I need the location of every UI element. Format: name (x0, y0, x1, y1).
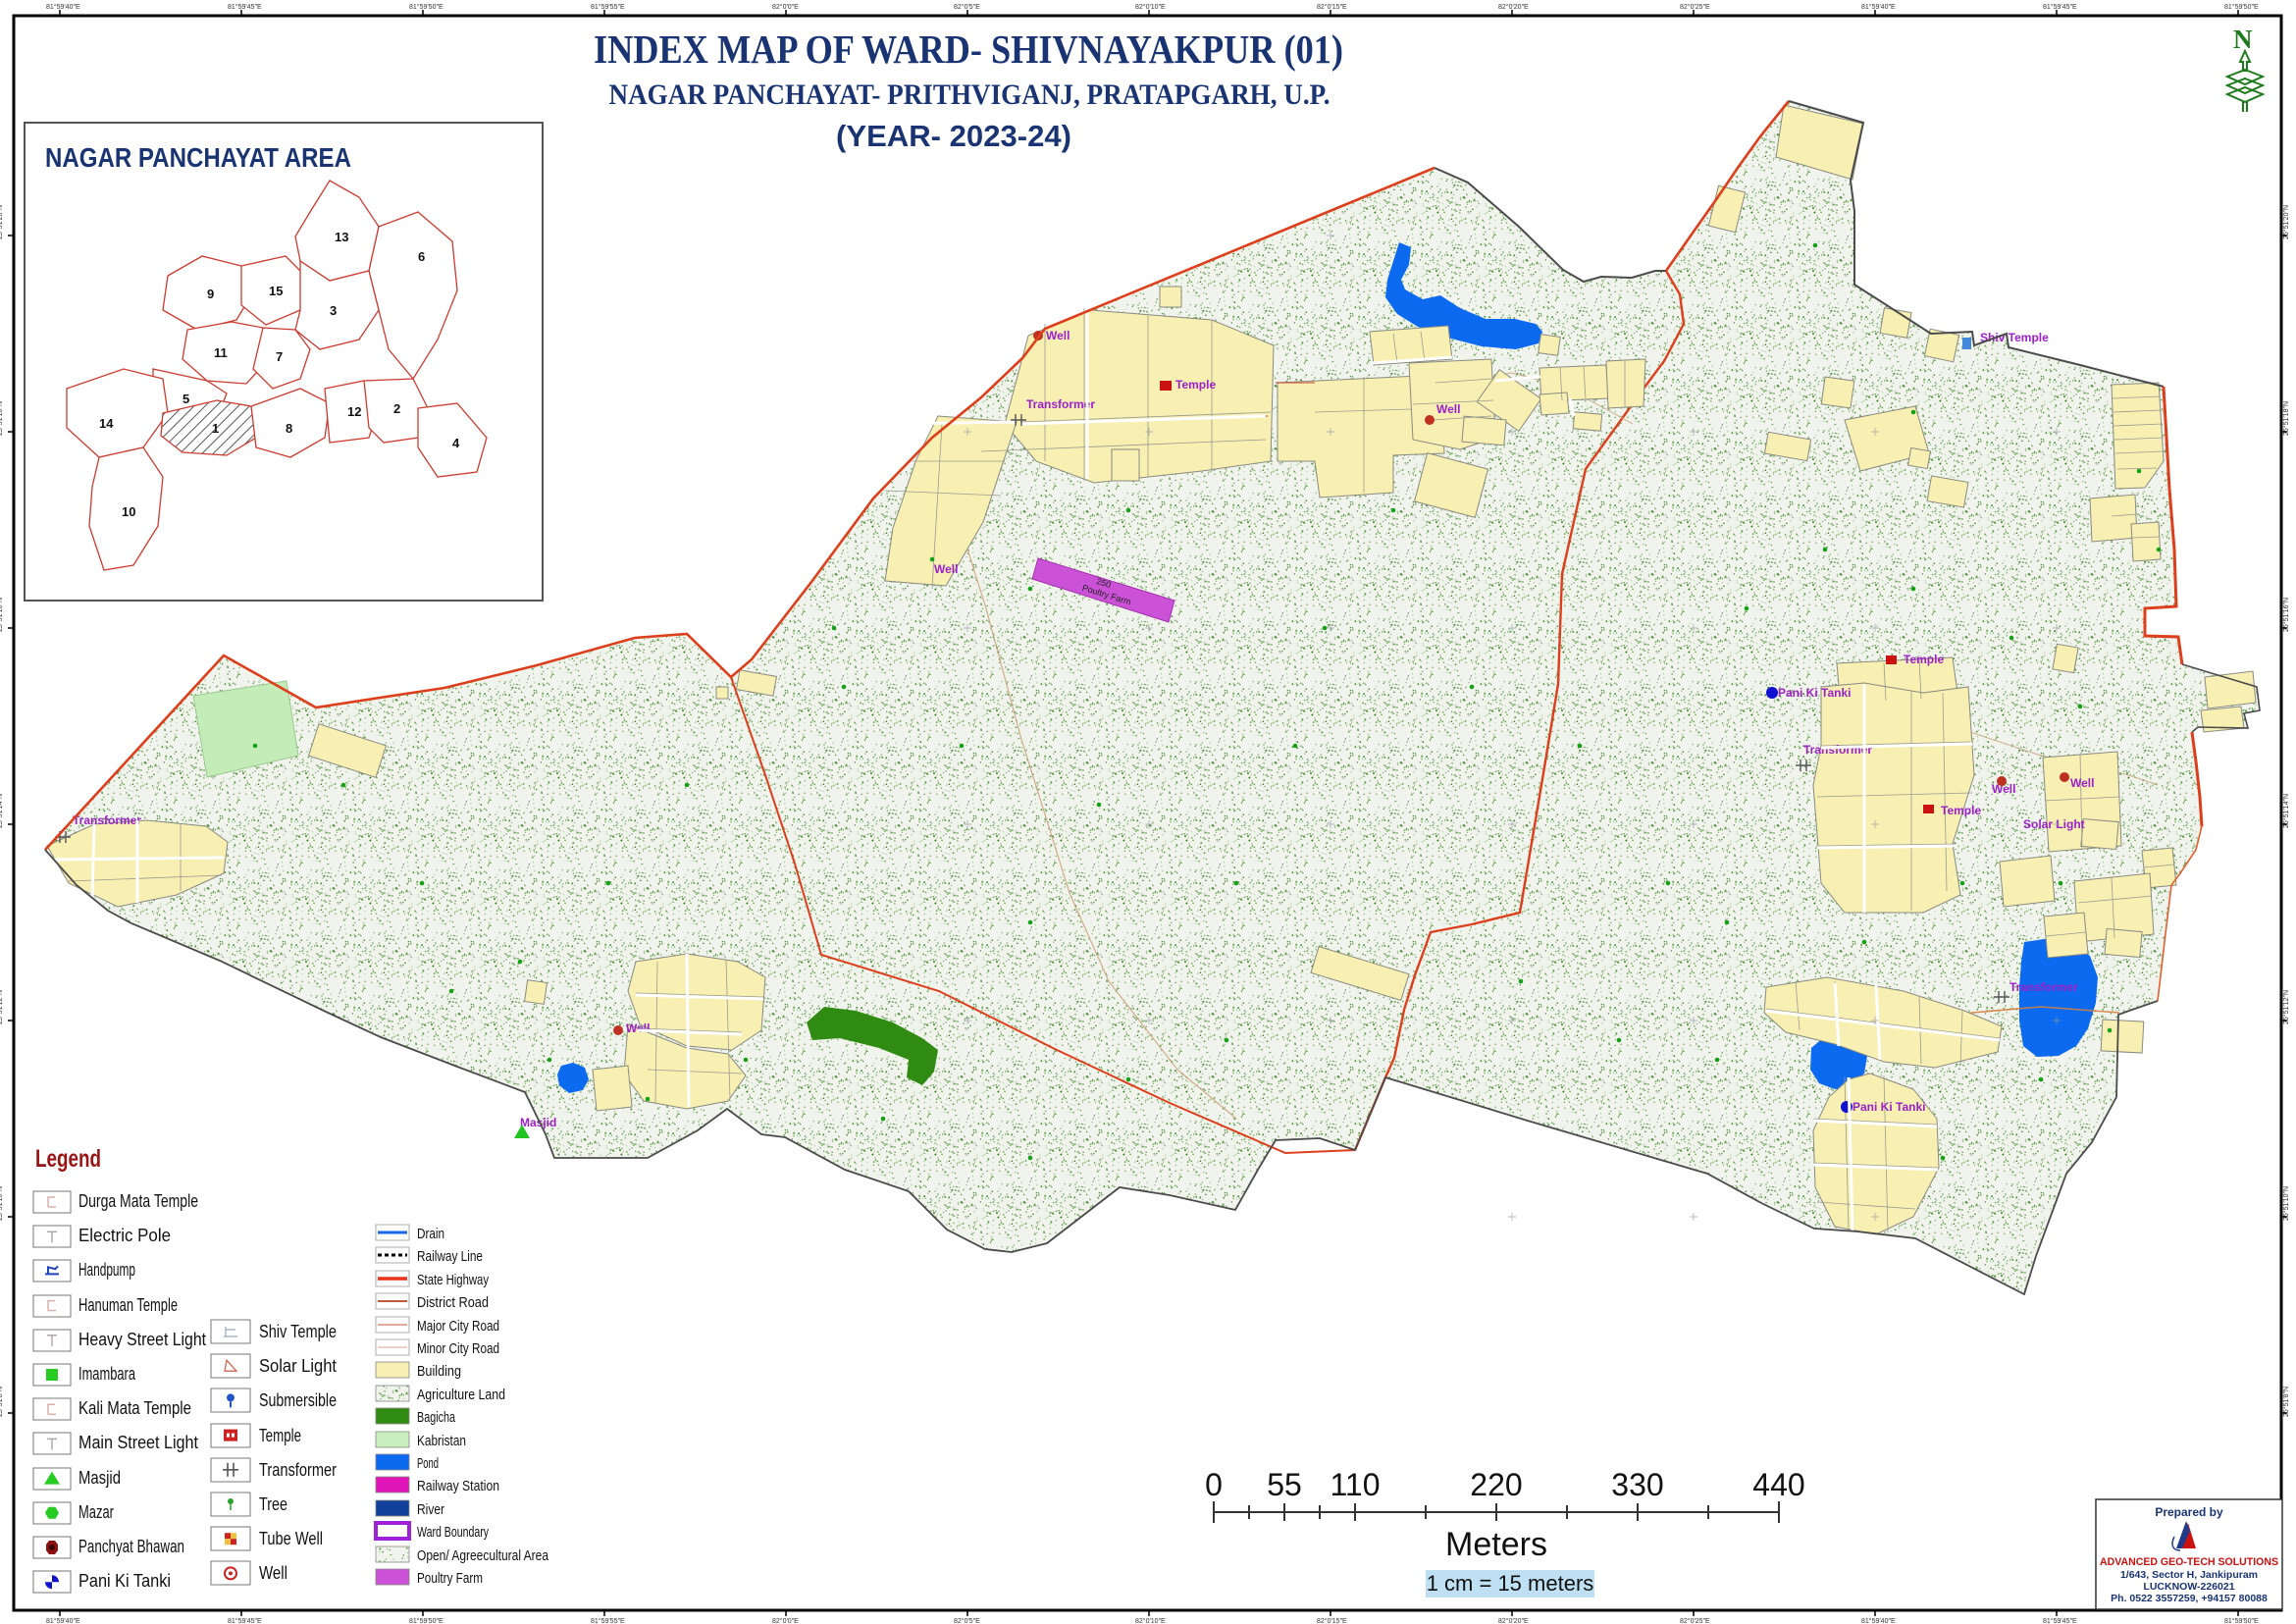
svg-text:25°51′18″N: 25°51′18″N (2282, 401, 2290, 436)
svg-text:Minor City Road: Minor City Road (417, 1341, 499, 1357)
svg-text:Meters: Meters (1445, 1526, 1547, 1563)
svg-text:25°51′14″N: 25°51′14″N (2282, 794, 2290, 828)
svg-text:Temple: Temple (1904, 653, 1944, 666)
svg-text:25°51′20″N: 25°51′20″N (0, 205, 4, 239)
svg-text:Open/ Agreecultural Area: Open/ Agreecultural Area (417, 1548, 549, 1564)
svg-text:N: N (2233, 25, 2253, 54)
svg-text:82°0′5″E: 82°0′5″E (954, 3, 980, 11)
svg-text:Drain: Drain (417, 1227, 444, 1242)
svg-text:6: 6 (418, 249, 425, 264)
svg-text:110: 110 (1330, 1467, 1380, 1502)
svg-text:Building: Building (417, 1364, 461, 1380)
svg-text:81°59′45″E: 81°59′45″E (228, 1617, 262, 1624)
svg-text:Prepared by: Prepared by (2155, 1505, 2223, 1519)
svg-text:81°59′40″E: 81°59′40″E (46, 1617, 80, 1624)
svg-text:River: River (417, 1502, 444, 1518)
svg-text:81°59′45″E: 81°59′45″E (2043, 3, 2077, 11)
svg-text:Legend: Legend (35, 1145, 101, 1173)
svg-text:82°0′0″E: 82°0′0″E (772, 3, 799, 11)
svg-text:Ward Boundary: Ward Boundary (417, 1525, 490, 1541)
svg-text:Masjid: Masjid (78, 1468, 121, 1488)
svg-text:8: 8 (286, 421, 292, 436)
svg-text:Pani Ki Tanki: Pani Ki Tanki (1852, 1100, 1925, 1114)
svg-text:82°0′15″E: 82°0′15″E (1317, 3, 1347, 11)
svg-text:Well: Well (259, 1563, 287, 1583)
svg-text:14: 14 (99, 416, 114, 431)
svg-text:Hanuman Temple: Hanuman Temple (78, 1295, 178, 1315)
svg-text:Transformer: Transformer (1026, 397, 1095, 411)
svg-text:Transformer: Transformer (259, 1460, 337, 1480)
svg-text:81°59′50″E: 81°59′50″E (409, 3, 444, 11)
svg-text:0: 0 (1205, 1467, 1223, 1502)
svg-text:Poultry Farm: Poultry Farm (417, 1571, 483, 1587)
svg-text:81°59′45″E: 81°59′45″E (228, 3, 262, 11)
svg-text:220: 220 (1470, 1467, 1522, 1502)
svg-text:13: 13 (335, 230, 348, 244)
svg-text:Kabristan: Kabristan (417, 1434, 466, 1449)
svg-text:Pani Ki Tanki: Pani Ki Tanki (78, 1571, 171, 1591)
svg-text:(YEAR- 2023-24): (YEAR- 2023-24) (836, 119, 1071, 153)
svg-text:LUCKNOW-226021: LUCKNOW-226021 (2143, 1581, 2234, 1593)
svg-text:81°59′50″E: 81°59′50″E (2224, 1617, 2259, 1624)
svg-text:Railway Station: Railway Station (417, 1479, 499, 1494)
svg-text:Transformer: Transformer (2009, 980, 2078, 994)
svg-text:Well: Well (1046, 329, 1070, 342)
svg-text:81°59′40″E: 81°59′40″E (1861, 1617, 1896, 1624)
svg-text:15: 15 (269, 284, 283, 298)
svg-text:Transformer: Transformer (73, 813, 141, 827)
svg-text:Pani Ki Tanki: Pani Ki Tanki (1778, 686, 1851, 700)
svg-text:Railway Line: Railway Line (417, 1249, 483, 1265)
svg-text:ADVANCED GEO-TECH SOLUTIONS: ADVANCED GEO-TECH SOLUTIONS (2100, 1556, 2278, 1568)
svg-text:Temple: Temple (1175, 378, 1216, 392)
svg-text:State Highway: State Highway (417, 1273, 490, 1288)
svg-text:Well: Well (1436, 402, 1460, 416)
svg-text:25°51′8″N: 25°51′8″N (2282, 1387, 2290, 1417)
svg-text:1 cm = 15 meters: 1 cm = 15 meters (1427, 1571, 1594, 1596)
svg-text:5: 5 (183, 392, 189, 406)
svg-text:Pond: Pond (417, 1456, 439, 1472)
svg-text:1/643, Sector H, Jankipuram: 1/643, Sector H, Jankipuram (2120, 1569, 2258, 1581)
svg-text:Durga Mata Temple: Durga Mata Temple (78, 1191, 198, 1211)
svg-text:Well: Well (934, 562, 958, 576)
svg-text:INDEX MAP OF WARD- SHIVNAYAKPU: INDEX MAP OF WARD- SHIVNAYAKPUR (01) (594, 26, 1343, 72)
svg-text:Shiv Temple: Shiv Temple (1980, 331, 2049, 344)
svg-text:1: 1 (212, 421, 219, 436)
svg-text:11: 11 (214, 345, 228, 360)
svg-text:Main Street Light: Main Street Light (78, 1433, 198, 1452)
svg-text:81°59′40″E: 81°59′40″E (46, 3, 80, 11)
svg-text:Tree: Tree (259, 1494, 287, 1514)
svg-text:25°51′12″N: 25°51′12″N (2282, 990, 2290, 1024)
svg-text:Agriculture Land: Agriculture Land (417, 1388, 505, 1403)
svg-text:Electric Pole: Electric Pole (78, 1226, 171, 1245)
svg-text:Temple: Temple (259, 1426, 301, 1445)
svg-text:Well: Well (626, 1022, 650, 1035)
svg-text:3: 3 (330, 303, 337, 318)
svg-text:25°51′20″N: 25°51′20″N (2282, 205, 2290, 239)
svg-text:82°0′10″E: 82°0′10″E (1135, 3, 1166, 11)
svg-text:81°59′40″E: 81°59′40″E (1861, 3, 1896, 11)
svg-text:Transformer: Transformer (1803, 743, 1872, 757)
svg-text:Submersible: Submersible (259, 1390, 337, 1410)
svg-text:Temple: Temple (1941, 804, 1981, 817)
svg-text:2: 2 (393, 401, 400, 416)
svg-text:Tube Well: Tube Well (259, 1529, 323, 1548)
svg-text:Panchyat Bhawan: Panchyat Bhawan (78, 1537, 184, 1556)
svg-text:Solar Light: Solar Light (259, 1356, 337, 1376)
svg-text:NAGAR PANCHAYAT- PRITHVIGANJ,: NAGAR PANCHAYAT- PRITHVIGANJ, PRATAPGARH… (609, 79, 1331, 111)
svg-text:25°51′10″N: 25°51′10″N (2282, 1186, 2290, 1221)
svg-text:4: 4 (452, 436, 460, 450)
svg-text:330: 330 (1611, 1467, 1663, 1502)
svg-text:82°0′20″E: 82°0′20″E (1498, 3, 1529, 11)
svg-text:Bagicha: Bagicha (417, 1410, 456, 1426)
svg-text:81°59′50″E: 81°59′50″E (409, 1617, 444, 1624)
svg-text:82°0′25″E: 82°0′25″E (1680, 3, 1710, 11)
svg-text:81°59′55″E: 81°59′55″E (591, 1617, 625, 1624)
svg-text:25°51′18″N: 25°51′18″N (0, 401, 4, 436)
svg-text:Well: Well (2070, 776, 2094, 790)
svg-text:12: 12 (347, 404, 361, 419)
svg-text:Heavy Street Light: Heavy Street Light (78, 1330, 206, 1349)
svg-text:82°0′10″E: 82°0′10″E (1135, 1617, 1166, 1624)
svg-text:10: 10 (122, 504, 135, 519)
svg-text:25°51′14″N: 25°51′14″N (0, 794, 4, 828)
svg-text:25°51′10″N: 25°51′10″N (0, 1186, 4, 1221)
svg-text:Kali Mata Temple: Kali Mata Temple (78, 1398, 191, 1418)
svg-text:82°0′15″E: 82°0′15″E (1317, 1617, 1347, 1624)
svg-text:81°59′50″E: 81°59′50″E (2224, 3, 2259, 11)
svg-text:9: 9 (207, 287, 214, 301)
svg-text:25°51′16″N: 25°51′16″N (2282, 598, 2290, 632)
svg-text:440: 440 (1752, 1467, 1804, 1502)
svg-text:82°0′20″E: 82°0′20″E (1498, 1617, 1529, 1624)
svg-text:NAGAR PANCHAYAT AREA: NAGAR PANCHAYAT AREA (45, 142, 351, 173)
svg-text:Ph. 0522 3557259, +94157 80088: Ph. 0522 3557259, +94157 80088 (2111, 1593, 2268, 1604)
svg-text:82°0′25″E: 82°0′25″E (1680, 1617, 1710, 1624)
svg-text:Shiv Temple: Shiv Temple (259, 1322, 337, 1341)
svg-text:Handpump: Handpump (78, 1260, 135, 1280)
svg-text:55: 55 (1267, 1467, 1302, 1502)
svg-text:81°59′45″E: 81°59′45″E (2043, 1617, 2077, 1624)
svg-text:Imambara: Imambara (78, 1364, 136, 1384)
svg-text:82°0′5″E: 82°0′5″E (954, 1617, 980, 1624)
svg-text:District Road: District Road (417, 1295, 489, 1311)
svg-text:Major City Road: Major City Road (417, 1319, 499, 1335)
svg-text:25°51′16″N: 25°51′16″N (0, 598, 4, 632)
svg-text:25°51′12″N: 25°51′12″N (0, 990, 4, 1024)
svg-text:82°0′0″E: 82°0′0″E (772, 1617, 799, 1624)
svg-text:7: 7 (276, 349, 283, 364)
svg-text:Mazar: Mazar (78, 1502, 114, 1522)
svg-text:25°51′8″N: 25°51′8″N (0, 1387, 4, 1417)
svg-text:81°59′55″E: 81°59′55″E (591, 3, 625, 11)
